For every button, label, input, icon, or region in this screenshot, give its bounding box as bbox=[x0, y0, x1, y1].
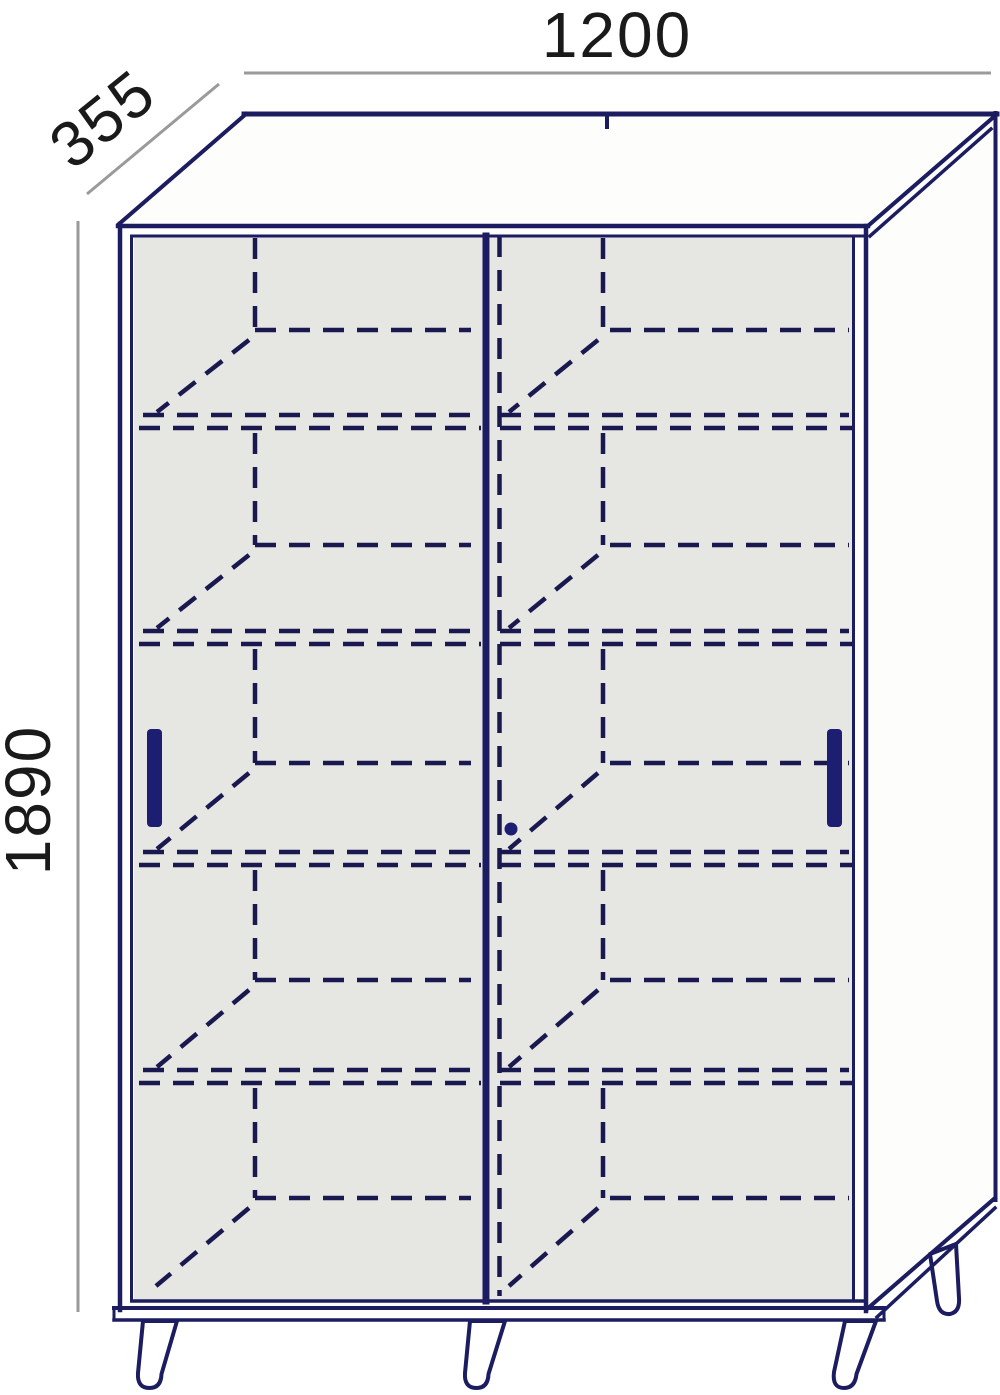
depth-dimension-label: 355 bbox=[36, 55, 169, 182]
front-center-leg bbox=[465, 1321, 505, 1388]
lock-pin bbox=[505, 823, 518, 836]
right-door-handle bbox=[827, 729, 842, 827]
left-door-handle bbox=[147, 729, 162, 827]
front-right-leg bbox=[834, 1321, 876, 1388]
wardrobe-dimension-drawing: 1200 355 1890 bbox=[0, 0, 1000, 1395]
front-left-leg bbox=[138, 1321, 177, 1388]
side-panel bbox=[868, 113, 996, 1311]
width-dimension-label: 1200 bbox=[542, 0, 692, 71]
right-sliding-door bbox=[490, 236, 852, 1300]
left-sliding-door bbox=[134, 236, 483, 1300]
drawing-canvas: 1200 355 1890 bbox=[0, 0, 1000, 1395]
legs bbox=[138, 1321, 876, 1388]
height-dimension-label: 1890 bbox=[0, 725, 64, 875]
top-panel bbox=[118, 112, 997, 224]
